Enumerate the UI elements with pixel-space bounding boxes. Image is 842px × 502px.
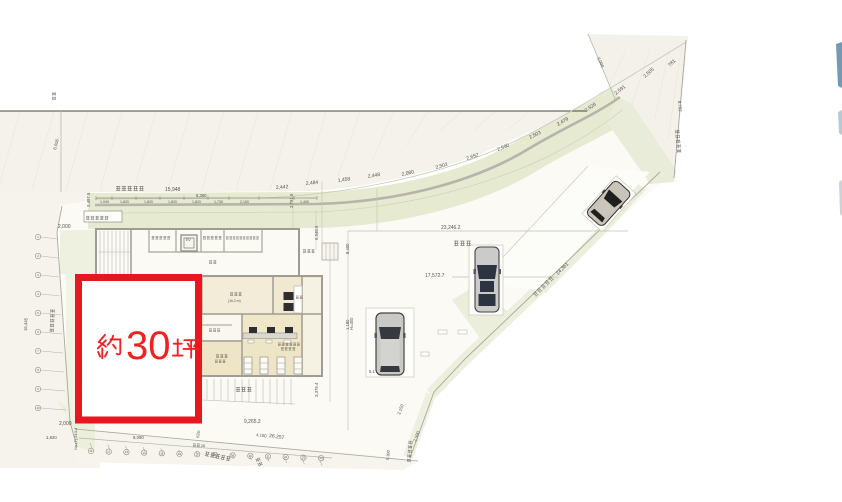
svg-text:6,360: 6,360 — [196, 193, 207, 198]
svg-text:EV: EV — [186, 238, 191, 242]
svg-text:11: 11 — [90, 449, 93, 453]
svg-text:1,820: 1,820 — [192, 200, 201, 204]
svg-text:2,791.9: 2,791.9 — [289, 193, 294, 208]
svg-text:1,730: 1,730 — [214, 200, 223, 204]
svg-text:2,000: 2,000 — [58, 224, 71, 230]
svg-text:13: 13 — [125, 450, 129, 454]
svg-text:9,265.2: 9,265.2 — [244, 419, 261, 425]
svg-text:1,820: 1,820 — [144, 200, 153, 204]
svg-text:3,375.4: 3,375.4 — [314, 382, 319, 397]
svg-text:1,400: 1,400 — [300, 200, 309, 204]
svg-text:30: 30 — [126, 324, 171, 368]
svg-text:8,702: 8,702 — [677, 101, 683, 113]
svg-text:22: 22 — [284, 455, 288, 459]
svg-text:1,820: 1,820 — [120, 200, 129, 204]
svg-text:24: 24 — [320, 456, 324, 460]
svg-text:1,820: 1,820 — [46, 435, 57, 440]
svg-text:12: 12 — [107, 450, 111, 454]
svg-text:17,572.7: 17,572.7 — [425, 273, 445, 279]
svg-text:16,445: 16,445 — [23, 317, 28, 331]
svg-text:14: 14 — [143, 451, 147, 455]
svg-text:10: 10 — [36, 406, 40, 410]
svg-text:23: 23 — [302, 456, 306, 460]
svg-text:H=300: H=300 — [349, 317, 354, 330]
svg-text:28: 28 — [201, 444, 205, 448]
svg-text:15,948: 15,948 — [165, 187, 181, 193]
svg-text:6,548.9: 6,548.9 — [314, 225, 319, 240]
svg-text:2,442: 2,442 — [276, 184, 289, 191]
svg-text:23,246.2: 23,246.2 — [441, 225, 461, 231]
svg-text:2,000: 2,000 — [59, 421, 72, 427]
svg-text:1,040: 1,040 — [100, 200, 109, 204]
svg-text:No.(7),914.4: No.(7),914.4 — [73, 427, 78, 450]
svg-text:1,820: 1,820 — [168, 200, 177, 204]
svg-text:8,090: 8,090 — [133, 435, 144, 440]
svg-text:2,497.5: 2,497.5 — [86, 192, 91, 207]
svg-text:2,100: 2,100 — [240, 200, 249, 204]
svg-text:8,400: 8,400 — [345, 243, 350, 254]
svg-text:8,1: 8,1 — [369, 369, 375, 374]
svg-text:(16.2 m): (16.2 m) — [228, 299, 241, 303]
svg-text:5,380: 5,380 — [385, 449, 391, 460]
